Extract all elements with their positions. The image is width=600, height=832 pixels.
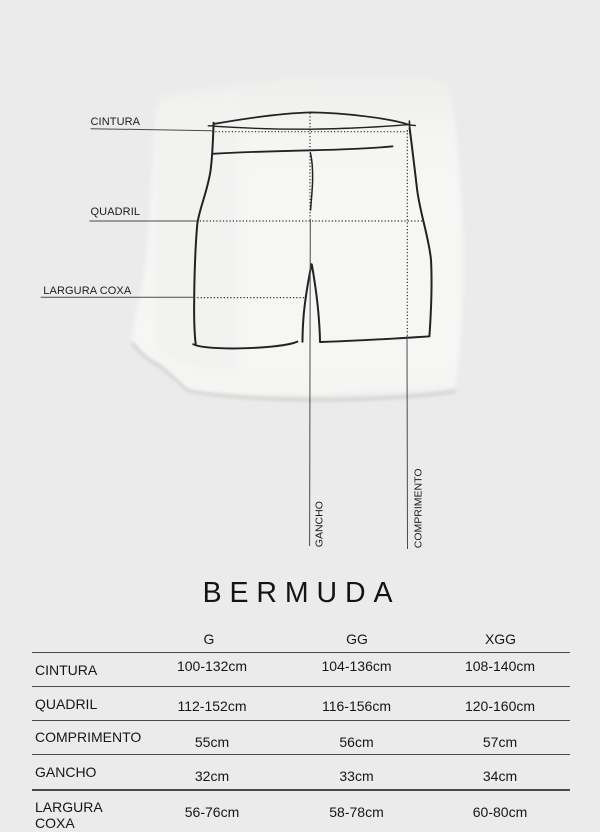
svg-text:COMPRIMENTO: COMPRIMENTO [413, 468, 425, 548]
svg-text:GANCHO: GANCHO [314, 501, 326, 547]
